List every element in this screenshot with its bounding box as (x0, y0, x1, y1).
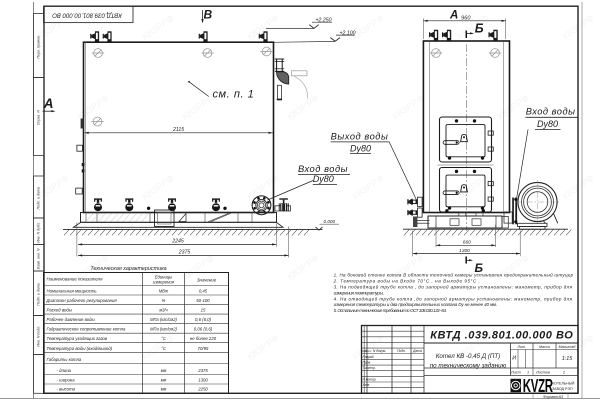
svg-text:мм: мм (161, 377, 167, 382)
svg-text:Б: Б (475, 22, 484, 36)
svg-text:Значение: Значение (197, 277, 217, 282)
svg-text:мм: мм (161, 368, 167, 373)
svg-text:0,6 (6,0): 0,6 (6,0) (195, 317, 212, 322)
svg-text:МПа (кгс/см2): МПа (кгс/см2) (150, 327, 177, 332)
svg-text:15: 15 (201, 308, 206, 313)
svg-text:Габариты котла: Габариты котла (47, 357, 82, 362)
svg-text:KVZR: KVZR (523, 376, 553, 396)
svg-text:0,45: 0,45 (199, 288, 208, 293)
svg-text:Dy80: Dy80 (350, 144, 371, 154)
svg-text:2245: 2245 (171, 238, 184, 244)
svg-text:см. п. 1: см. п. 1 (213, 88, 255, 100)
svg-text:Пров.: Пров. (363, 360, 372, 364)
svg-text:КОТЕЛЬНЫЙ: КОТЕЛЬНЫЙ (552, 382, 575, 386)
svg-text:Наименование показателя: Наименование показателя (47, 276, 104, 281)
svg-text:1: 1 (527, 371, 529, 375)
svg-text:Расход воды: Расход воды (47, 308, 73, 313)
svg-text:%: % (162, 298, 166, 303)
svg-text:Лит.: Лит. (516, 345, 525, 349)
svg-text:Справ. N: Справ. N (36, 110, 40, 125)
svg-text:Инв. N дубл.: Инв. N дубл. (36, 222, 40, 243)
svg-text:Номинальная мощность: Номинальная мощность (47, 288, 98, 293)
svg-text:Листов: Листов (535, 371, 550, 375)
svg-text:Взам. инв. N: Взам. инв. N (36, 248, 40, 269)
svg-text:2115: 2115 (172, 127, 184, 133)
svg-text:660: 660 (463, 239, 471, 245)
svg-text:70/95: 70/95 (198, 346, 209, 351)
svg-text:1300: 1300 (198, 377, 208, 382)
svg-text:Лист: Лист (364, 349, 373, 353)
svg-text:+2.250: +2.250 (316, 17, 332, 23)
svg-text:В: В (204, 8, 213, 22)
svg-text:2375: 2375 (178, 249, 191, 255)
svg-text:2. Температура воды на Вхо: 2. Температура воды на Входе 70°С , на В… (333, 278, 481, 283)
svg-text:Подп. и дата: Подп. и дата (36, 187, 40, 210)
svg-text:Инв. N подл.: Инв. N подл. (36, 326, 40, 347)
svg-text:КВТД.039.801.00.000 ВО: КВТД.039.801.00.000 ВО (52, 11, 122, 18)
svg-text:Масштаб: Масштаб (559, 345, 577, 349)
svg-text:- длина: - длина (57, 368, 72, 373)
svg-text:мм: мм (161, 387, 167, 392)
svg-text:3. На подводящей трубе кот: 3. На подводящей трубе котла , до запорн… (334, 284, 573, 290)
svg-text:измерения температуры и два: измерения температуры и два предохраните… (334, 302, 497, 307)
svg-text:- высота: - высота (57, 387, 76, 392)
svg-text:Подп. и дата: Подп. и дата (36, 283, 40, 306)
svg-text:4. На отводящей трубе котл: 4. На отводящей трубе котла ,до запорной… (334, 295, 573, 301)
svg-text:Рабочее давление воды: Рабочее давление воды (47, 317, 96, 322)
svg-text:Утв.: Утв. (363, 383, 371, 387)
svg-text:И: И (512, 356, 516, 362)
svg-text:не более 220: не более 220 (190, 336, 217, 341)
svg-text:2375: 2375 (197, 368, 208, 373)
svg-text:измерения: измерения (153, 280, 175, 285)
svg-text:2250: 2250 (197, 387, 208, 392)
svg-text:Перв. примен.: Перв. примен. (36, 35, 40, 59)
svg-text:Дата: Дата (412, 349, 422, 353)
svg-text:Температура уходящих газов: Температура уходящих газов (47, 336, 108, 341)
svg-text:Н.контр.: Н.контр. (363, 377, 377, 381)
svg-text:А: А (449, 10, 458, 22)
svg-text:Лист: Лист (510, 371, 521, 375)
svg-text:Dy80: Dy80 (313, 174, 334, 184)
svg-text:0.000: 0.000 (324, 219, 336, 224)
svg-text:5. Остальные технические тр: 5. Остальные технические требования по О… (334, 308, 447, 313)
svg-text:Формат: Формат (543, 395, 558, 399)
svg-text:50-100: 50-100 (196, 298, 210, 303)
svg-text:N докум.: N докум. (373, 349, 386, 353)
svg-text:°С: °С (161, 336, 166, 341)
svg-text:А3: А3 (558, 395, 565, 399)
svg-text:Т.контр.: Т.контр. (363, 366, 376, 370)
svg-text:0,06 (0,6): 0,06 (0,6) (194, 327, 213, 332)
svg-text:Масса: Масса (539, 345, 550, 349)
svg-text:°С: °С (161, 346, 166, 351)
svg-text:КВТД .039.801.00.000 ВО: КВТД .039.801.00.000 ВО (430, 330, 573, 342)
svg-text:Вход воды: Вход воды (526, 106, 576, 116)
svg-text:Гидравлическое сопротивление к: Гидравлическое сопротивление котла (47, 327, 127, 332)
svg-text:А: А (43, 96, 54, 111)
svg-text:Подп.: Подп. (397, 349, 406, 353)
svg-text:измерения температуры.: измерения температуры. (334, 291, 384, 296)
svg-text:Котел КВ -0,45 Д (ПТ): Котел КВ -0,45 Д (ПТ) (436, 353, 500, 360)
svg-text:Диапазон рабочего регулировани: Диапазон рабочего регулирования (46, 298, 118, 303)
svg-text:Выход воды: Выход воды (331, 131, 389, 141)
svg-text:ЗАВОД РЭП: ЗАВОД РЭП (552, 387, 573, 391)
svg-text:1. На боковой стенке котла: 1. На боковой стенке котла В области топ… (334, 272, 574, 278)
svg-text:Техническая характеристика: Техническая характеристика (90, 266, 166, 272)
svg-text:Dy80: Dy80 (537, 119, 558, 129)
svg-text:960: 960 (461, 15, 471, 21)
svg-text:м3/ч: м3/ч (159, 308, 168, 313)
svg-text:1300: 1300 (459, 248, 470, 254)
svg-text:МВт: МВт (159, 288, 169, 293)
svg-text:+2.100: +2.100 (340, 30, 356, 36)
svg-text:1:15: 1:15 (562, 356, 573, 362)
svg-text:- ширина: - ширина (57, 377, 76, 382)
svg-text:Разраб.: Разраб. (363, 355, 375, 359)
svg-text:Температура воды (вход/выход): Температура воды (вход/выход) (47, 346, 113, 351)
svg-text:МПа (кгс/см2): МПа (кгс/см2) (150, 317, 177, 322)
svg-text:Вход воды: Вход воды (298, 164, 348, 174)
